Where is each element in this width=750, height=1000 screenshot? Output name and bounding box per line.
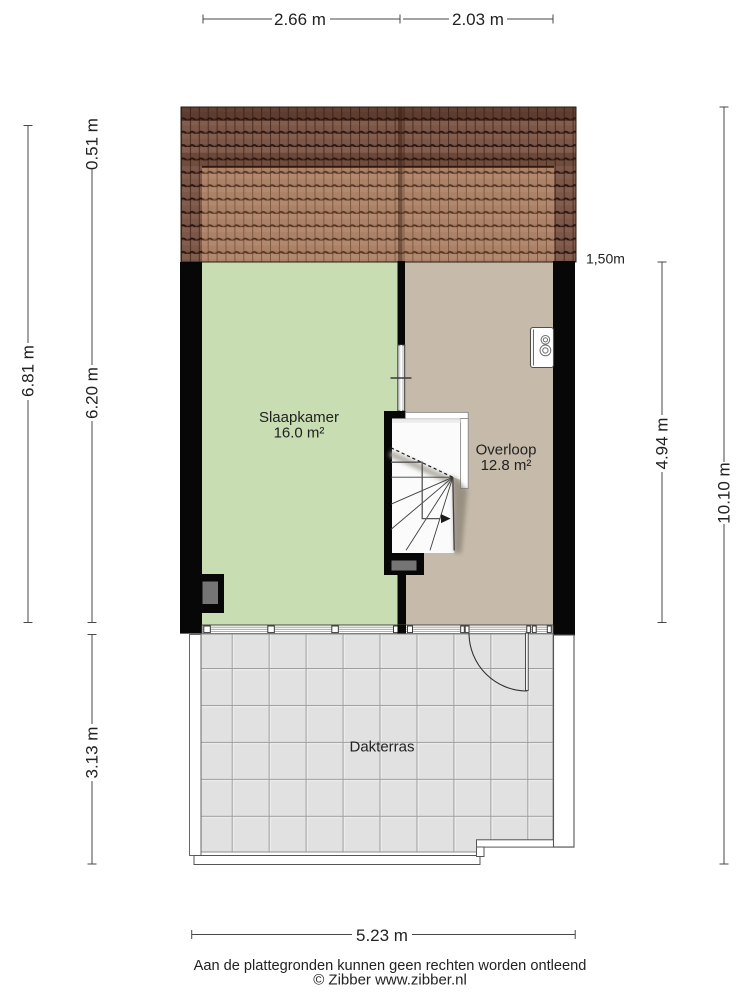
svg-text:0.51 m: 0.51 m	[83, 118, 102, 170]
svg-text:Overloop: Overloop	[476, 442, 537, 459]
svg-text:© Zibber www.zibber.nl: © Zibber www.zibber.nl	[313, 972, 467, 989]
svg-text:12.8 m²: 12.8 m²	[481, 457, 532, 474]
svg-text:6.20 m: 6.20 m	[83, 367, 102, 419]
svg-text:16.0 m²: 16.0 m²	[274, 425, 325, 442]
svg-text:Dakterras: Dakterras	[349, 739, 414, 756]
svg-text:6.81 m: 6.81 m	[19, 345, 38, 397]
svg-text:4.94 m: 4.94 m	[653, 418, 672, 470]
svg-text:2.03 m: 2.03 m	[452, 10, 504, 29]
svg-text:3.13 m: 3.13 m	[83, 727, 102, 779]
svg-text:1,50m: 1,50m	[586, 251, 625, 267]
svg-text:Slaapkamer: Slaapkamer	[259, 409, 339, 426]
svg-text:10.10 m: 10.10 m	[715, 462, 734, 523]
svg-text:2.66 m: 2.66 m	[274, 10, 326, 29]
svg-text:5.23 m: 5.23 m	[356, 926, 408, 945]
